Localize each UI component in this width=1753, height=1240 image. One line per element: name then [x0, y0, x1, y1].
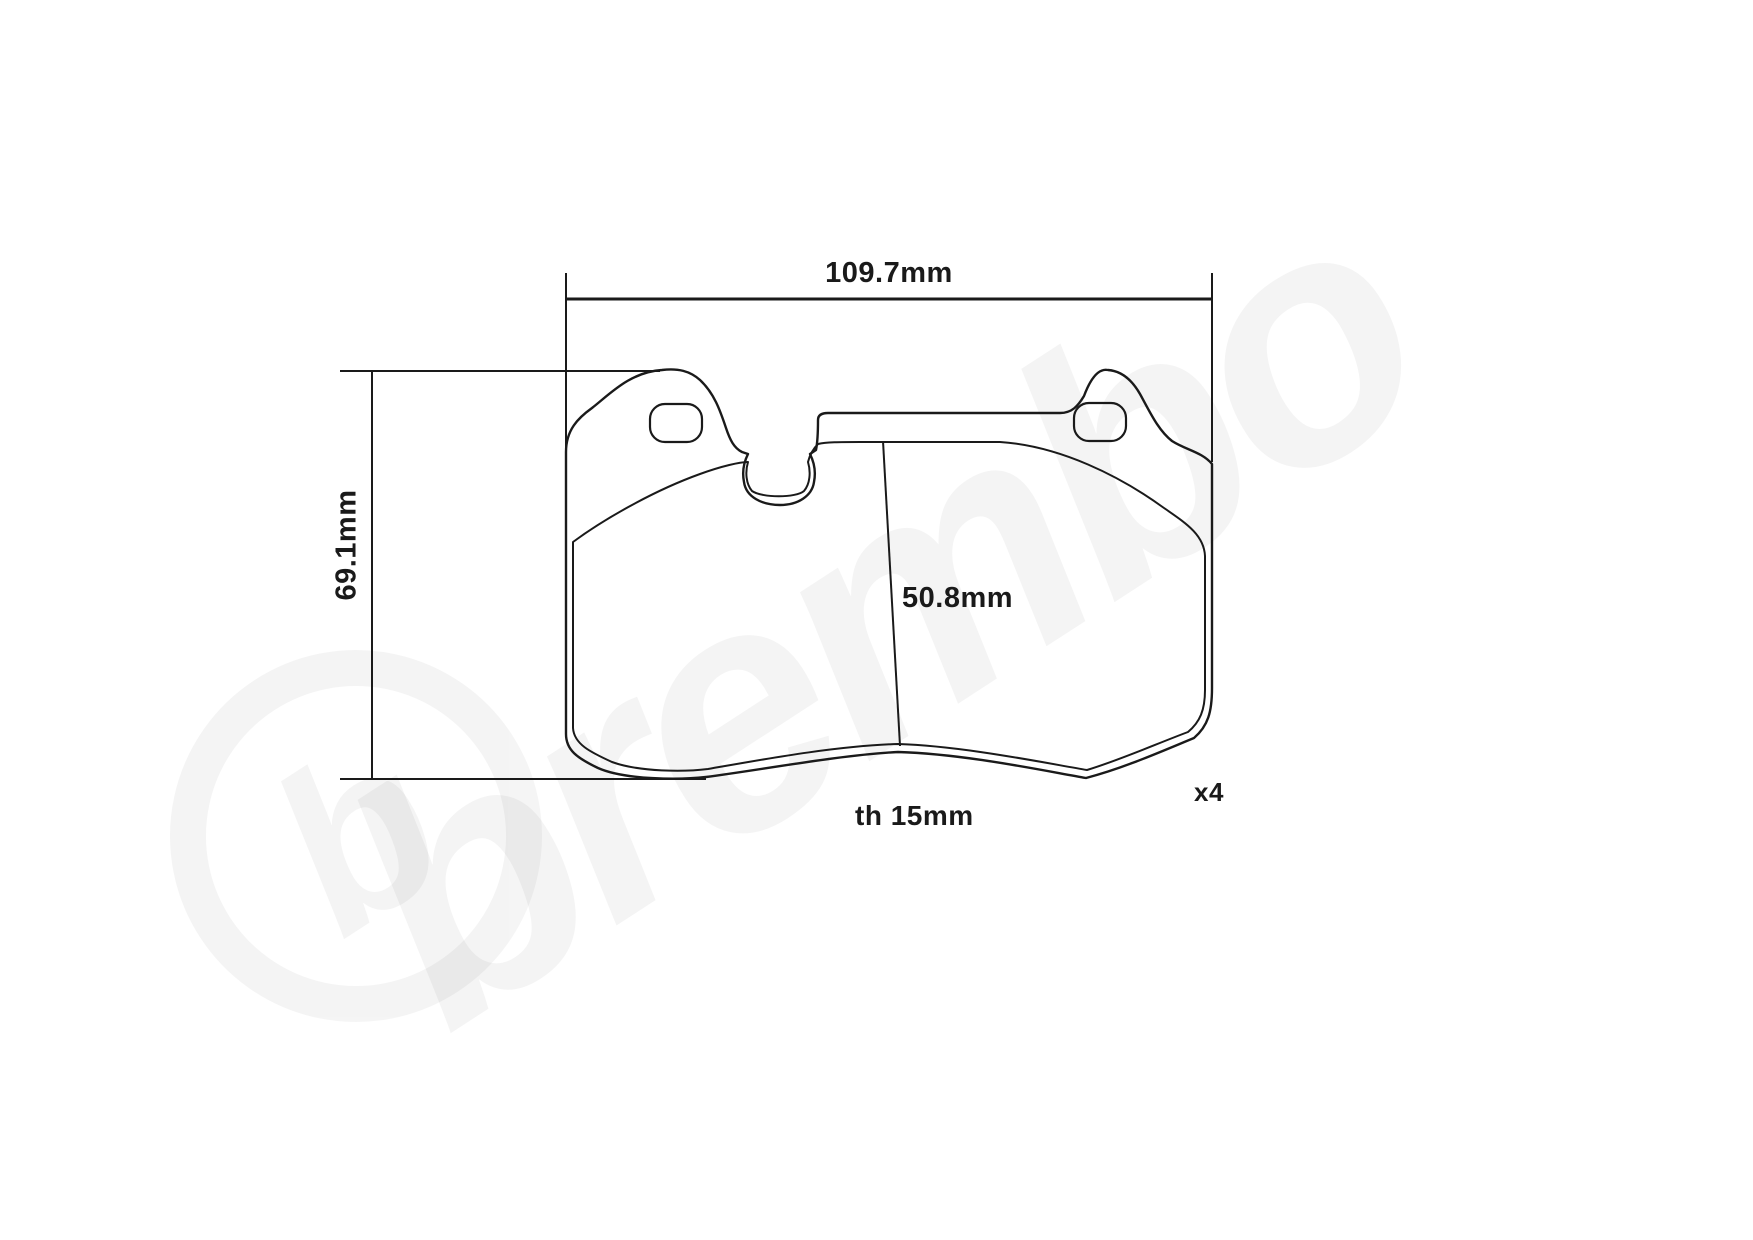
- pad-height-dimension-label: 50.8mm: [902, 582, 1013, 615]
- quantity-label: x4: [1194, 777, 1224, 808]
- left-ear-hole: [650, 404, 702, 442]
- dimension-line-pad-height: [883, 441, 900, 746]
- height-dimension-label: 69.1mm: [331, 489, 364, 600]
- thickness-label: th 15mm: [855, 800, 974, 832]
- backplate-outline: [566, 369, 1212, 778]
- dimension-lines: [340, 273, 1212, 779]
- friction-material-outline: [573, 442, 1205, 771]
- diagram-canvas: b brembo 109.7mm 69.1mm 50.8mm th 15mm x…: [0, 0, 1753, 1240]
- brake-pad-drawing: [0, 0, 1753, 1240]
- right-ear-hole: [1074, 403, 1126, 441]
- width-dimension-label: 109.7mm: [566, 257, 1212, 290]
